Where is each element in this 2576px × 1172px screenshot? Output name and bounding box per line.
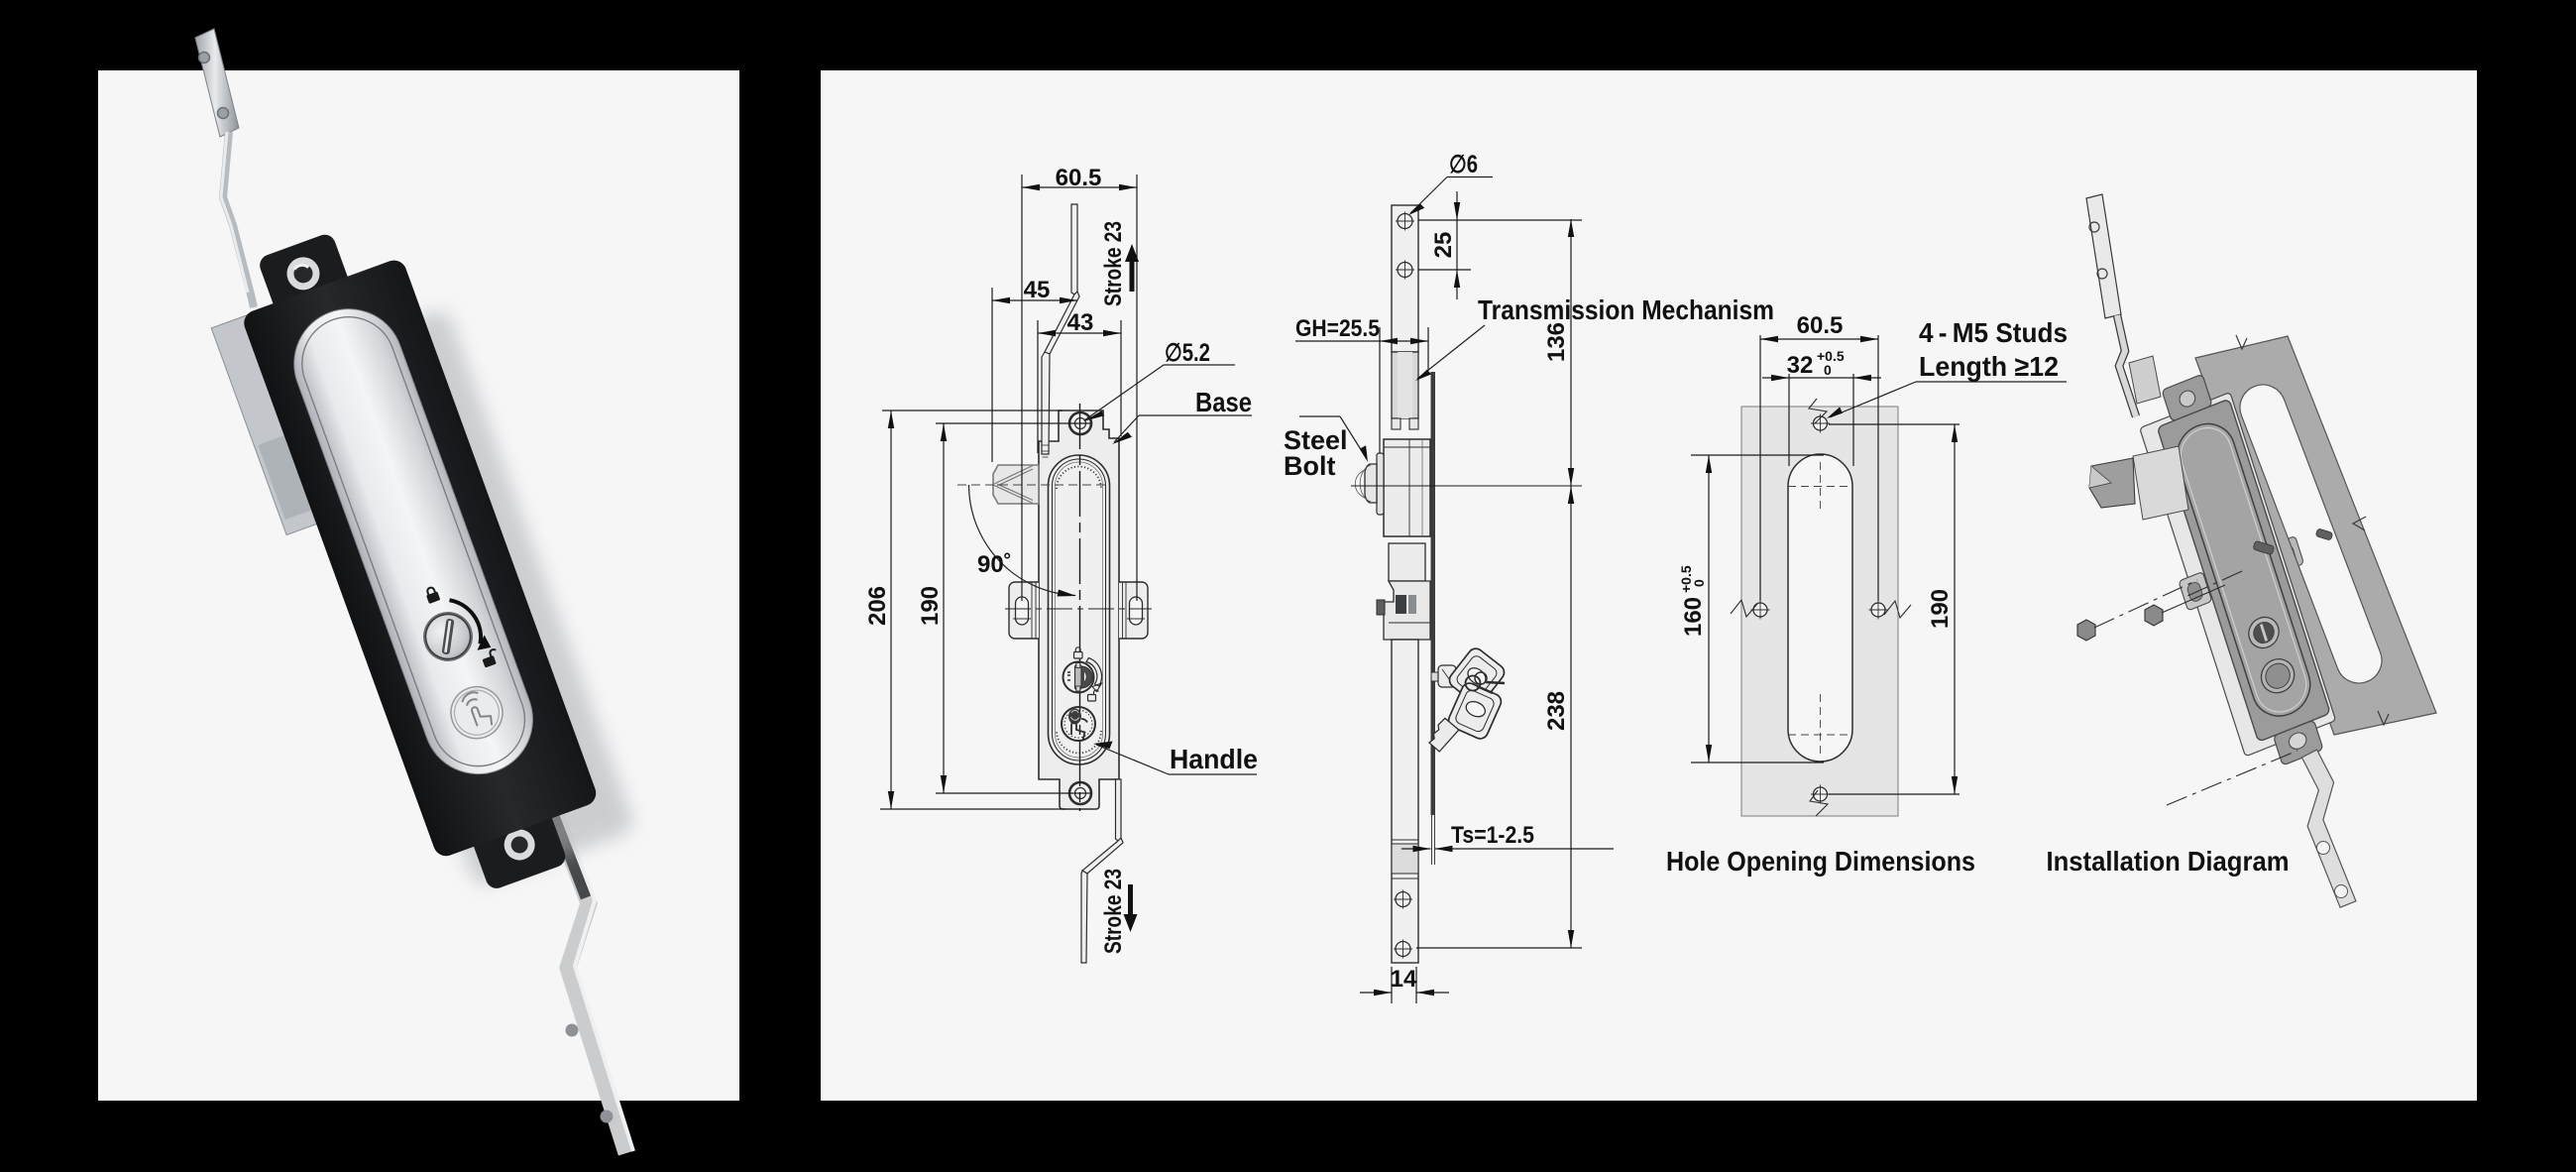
svg-text:0: 0 bbox=[1824, 362, 1832, 378]
svg-text:0: 0 bbox=[1691, 579, 1707, 587]
svg-text:∅6: ∅6 bbox=[1449, 151, 1478, 178]
svg-text:14: 14 bbox=[1391, 966, 1417, 993]
svg-text:Length ≥12: Length ≥12 bbox=[1919, 351, 2059, 382]
svg-text:60.5: 60.5 bbox=[1797, 312, 1844, 339]
svg-text:238: 238 bbox=[1543, 691, 1570, 731]
svg-text:Base: Base bbox=[1195, 387, 1252, 417]
svg-text:+0.5: +0.5 bbox=[1678, 565, 1694, 593]
svg-text:Stroke 23: Stroke 23 bbox=[1100, 869, 1127, 954]
svg-text:160: 160 bbox=[1680, 597, 1707, 637]
svg-text:45: 45 bbox=[1024, 277, 1051, 303]
svg-text:136: 136 bbox=[1543, 322, 1570, 362]
svg-text:4 - M5 Studs: 4 - M5 Studs bbox=[1919, 317, 2068, 348]
svg-text:43: 43 bbox=[1067, 309, 1094, 336]
svg-text:90˚: 90˚ bbox=[977, 551, 1012, 578]
svg-text:Hole Opening Dimensions: Hole Opening Dimensions bbox=[1666, 846, 1975, 877]
svg-text:25: 25 bbox=[1430, 232, 1457, 259]
svg-text:∅5.2: ∅5.2 bbox=[1165, 339, 1210, 367]
svg-text:Transmission Mechanism: Transmission Mechanism bbox=[1478, 294, 1774, 325]
svg-text:Stroke 23: Stroke 23 bbox=[1100, 221, 1127, 306]
svg-text:206: 206 bbox=[864, 586, 891, 626]
svg-text:190: 190 bbox=[917, 586, 944, 626]
svg-text:Bolt: Bolt bbox=[1284, 451, 1335, 481]
svg-text:Installation Diagram: Installation Diagram bbox=[2047, 846, 2290, 877]
svg-text:60.5: 60.5 bbox=[1056, 165, 1102, 191]
svg-text:32: 32 bbox=[1787, 352, 1814, 379]
svg-text:190: 190 bbox=[1927, 589, 1954, 629]
svg-text:Handle: Handle bbox=[1170, 744, 1258, 774]
svg-text:GH=25.5: GH=25.5 bbox=[1295, 315, 1380, 342]
svg-text:Ts=1-2.5: Ts=1-2.5 bbox=[1451, 822, 1534, 849]
